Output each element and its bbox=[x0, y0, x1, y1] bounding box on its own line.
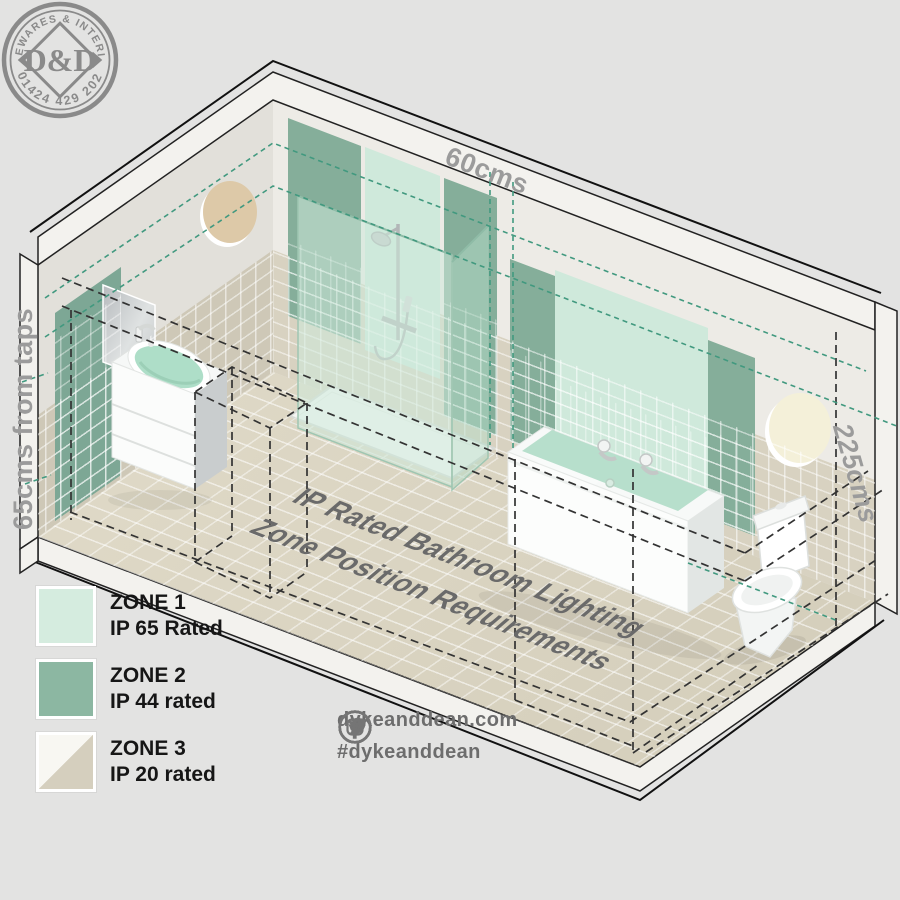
legend-row-zone3: ZONE 3 IP 20 rated bbox=[36, 732, 216, 792]
shower-enclosure bbox=[290, 196, 494, 490]
shower-glass-front bbox=[298, 196, 452, 487]
dyke-and-dean-logo: HOMEWARES & INTERIORS 01424 429 202 D&D bbox=[0, 0, 120, 120]
zone3-name: ZONE 3 bbox=[110, 736, 216, 762]
dimension-label-65cms: 65cms from taps bbox=[8, 308, 39, 530]
pinterest-icon: P bbox=[337, 709, 373, 745]
svg-text:P: P bbox=[348, 716, 362, 740]
zone3-swatch bbox=[36, 732, 96, 792]
logo-monogram: D&D bbox=[24, 42, 97, 78]
zone1-rating: IP 65 Rated bbox=[110, 616, 223, 642]
zone1-swatch bbox=[36, 586, 96, 646]
bathroom-zone-diagram: 60cms 65cms from taps 225cms IP Rated Ba… bbox=[0, 0, 900, 900]
zone1-name: ZONE 1 bbox=[110, 590, 223, 616]
shower-glass-side bbox=[452, 226, 488, 490]
zone3-rating: IP 20 rated bbox=[110, 762, 216, 788]
legend-row-zone1: ZONE 1 IP 65 Rated bbox=[36, 586, 223, 646]
sink-vanity bbox=[108, 326, 227, 510]
zone2-swatch bbox=[36, 659, 96, 719]
legend-row-zone2: ZONE 2 IP 44 rated bbox=[36, 659, 216, 719]
zone2-name: ZONE 2 bbox=[110, 663, 216, 689]
social-block: dykeanddean.com P #dykeanddean bbox=[337, 709, 518, 764]
toilet bbox=[722, 496, 809, 671]
zone2-rating: IP 44 rated bbox=[110, 689, 216, 715]
